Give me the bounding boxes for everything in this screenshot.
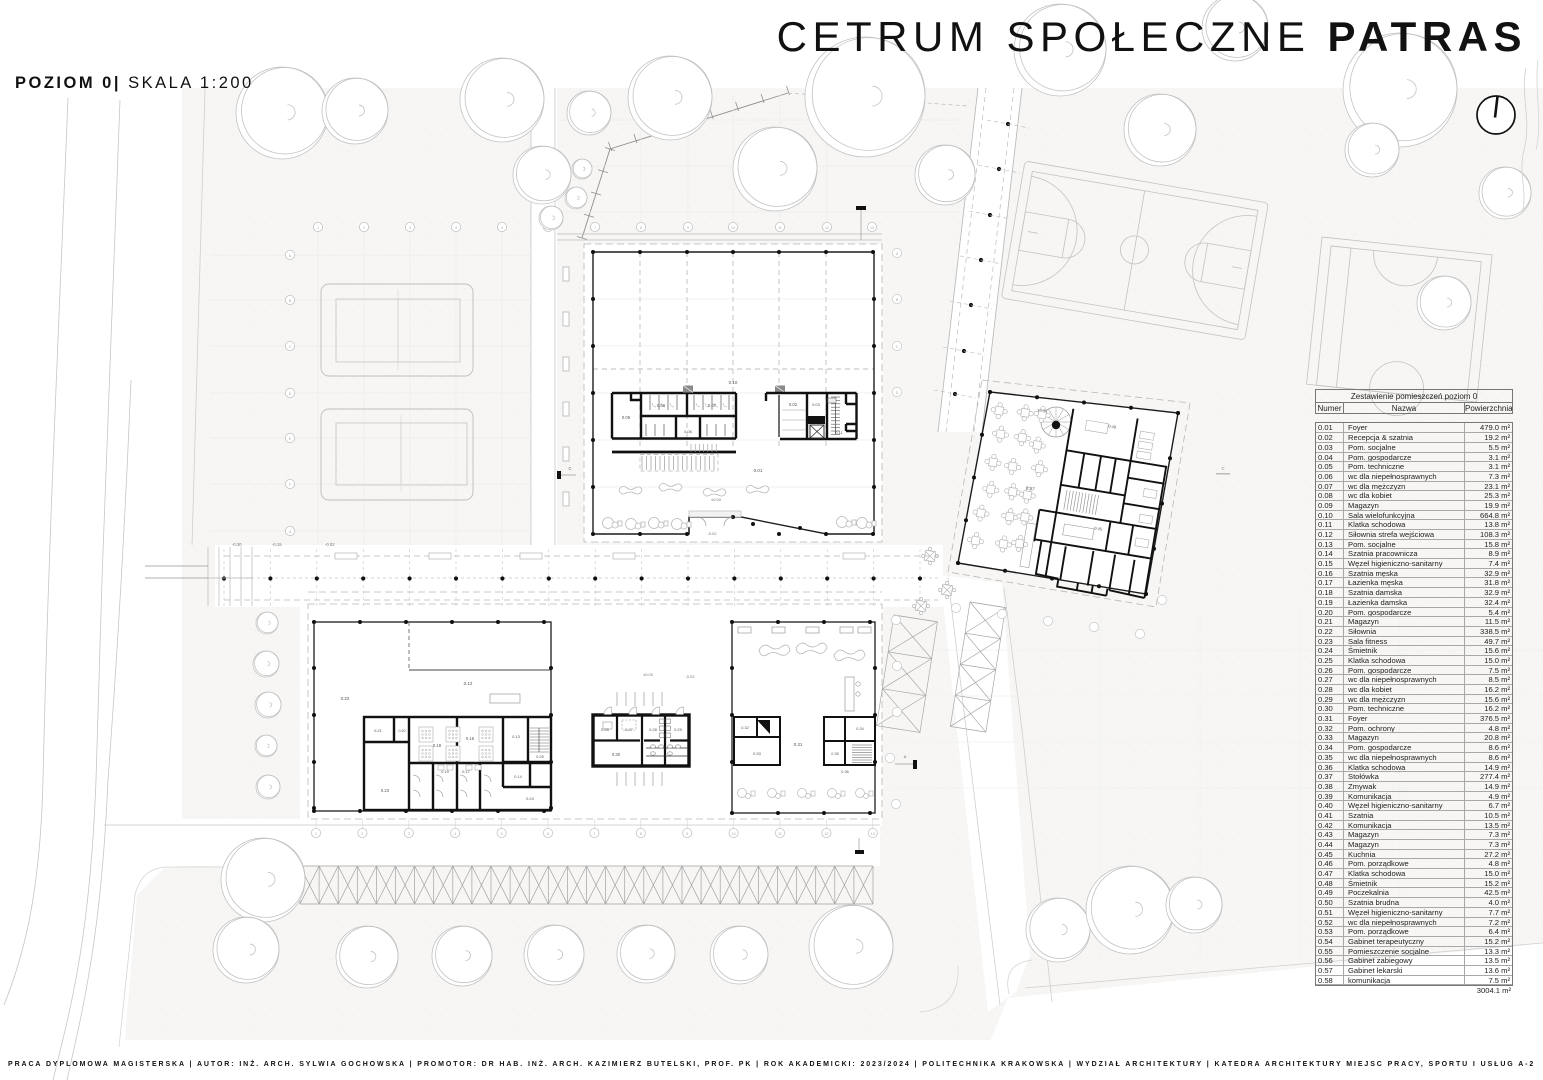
svg-text:12: 12 — [824, 832, 828, 836]
svg-text:0.28: 0.28 — [649, 727, 658, 732]
svg-text:-0.15: -0.15 — [272, 542, 282, 547]
svg-text:5: 5 — [501, 226, 503, 230]
svg-text:A: A — [904, 754, 907, 759]
svg-text:13: 13 — [870, 226, 874, 230]
svg-text:2: 2 — [361, 832, 363, 836]
svg-text:9: 9 — [686, 832, 688, 836]
svg-text:10: 10 — [732, 832, 736, 836]
svg-text:±0.00: ±0.00 — [643, 672, 654, 677]
svg-text:7: 7 — [593, 832, 595, 836]
svg-text:0.13: 0.13 — [512, 734, 521, 739]
svg-text:0.09: 0.09 — [622, 415, 631, 420]
svg-text:8: 8 — [640, 832, 642, 836]
svg-text:0.20: 0.20 — [399, 729, 406, 733]
svg-text:0.19: 0.19 — [441, 769, 450, 774]
svg-text:0.18: 0.18 — [433, 743, 442, 748]
svg-text:0.24: 0.24 — [526, 796, 535, 801]
svg-text:0.33: 0.33 — [753, 751, 762, 756]
svg-text:-0.02: -0.02 — [707, 531, 717, 536]
svg-text:0.07: 0.07 — [708, 403, 717, 408]
svg-text:0.12: 0.12 — [464, 681, 473, 686]
svg-text:±0.00: ±0.00 — [711, 497, 722, 502]
svg-text:-0.02: -0.02 — [685, 674, 695, 679]
svg-text:8: 8 — [640, 226, 642, 230]
svg-text:0.29: 0.29 — [674, 727, 683, 732]
svg-text:0.01: 0.01 — [754, 468, 763, 473]
svg-text:4: 4 — [455, 226, 457, 230]
svg-text:C: C — [1221, 466, 1224, 471]
svg-text:3: 3 — [408, 832, 410, 836]
svg-text:0.10: 0.10 — [729, 380, 738, 385]
svg-text:9: 9 — [687, 226, 689, 230]
svg-text:6: 6 — [547, 832, 549, 836]
svg-text:12: 12 — [825, 226, 829, 230]
svg-text:C: C — [289, 345, 292, 349]
svg-text:0.30: 0.30 — [612, 752, 621, 757]
svg-text:0.06: 0.06 — [684, 429, 693, 434]
svg-text:0.31: 0.31 — [794, 742, 803, 747]
svg-text:13: 13 — [871, 832, 875, 836]
svg-text:1: 1 — [315, 832, 317, 836]
svg-text:5: 5 — [501, 832, 503, 836]
svg-text:0.16: 0.16 — [466, 736, 475, 741]
svg-text:C: C — [896, 345, 899, 349]
svg-text:-0.02: -0.02 — [325, 542, 335, 547]
svg-text:0.23: 0.23 — [381, 788, 390, 793]
svg-text:D: D — [896, 391, 899, 395]
svg-text:0.22: 0.22 — [341, 696, 350, 701]
svg-text:0.21: 0.21 — [374, 728, 383, 733]
svg-text:0.27: 0.27 — [625, 727, 634, 732]
svg-text:0.03: 0.03 — [812, 402, 821, 407]
svg-text:0.35: 0.35 — [831, 752, 838, 756]
svg-text:0.26: 0.26 — [601, 727, 610, 732]
svg-text:-0.30: -0.30 — [232, 542, 242, 547]
svg-text:0.17: 0.17 — [462, 769, 471, 774]
svg-text:7: 7 — [594, 226, 596, 230]
svg-text:2: 2 — [363, 226, 365, 230]
svg-text:4: 4 — [454, 832, 456, 836]
svg-text:0.25: 0.25 — [536, 755, 543, 759]
svg-text:1: 1 — [317, 226, 319, 230]
svg-text:C: C — [568, 466, 571, 471]
svg-text:0.11: 0.11 — [835, 430, 843, 435]
svg-text:0.34: 0.34 — [856, 727, 863, 731]
svg-text:0.08: 0.08 — [657, 403, 666, 408]
svg-text:0.14: 0.14 — [514, 775, 521, 779]
svg-text:0.32: 0.32 — [741, 726, 748, 730]
svg-text:0.02: 0.02 — [789, 402, 798, 407]
svg-text:11: 11 — [778, 226, 782, 230]
svg-text:10: 10 — [731, 226, 735, 230]
svg-text:0.36: 0.36 — [841, 770, 848, 774]
svg-text:G: G — [289, 530, 292, 534]
svg-text:D: D — [289, 392, 292, 396]
svg-text:3: 3 — [409, 226, 411, 230]
svg-text:11: 11 — [778, 832, 782, 836]
